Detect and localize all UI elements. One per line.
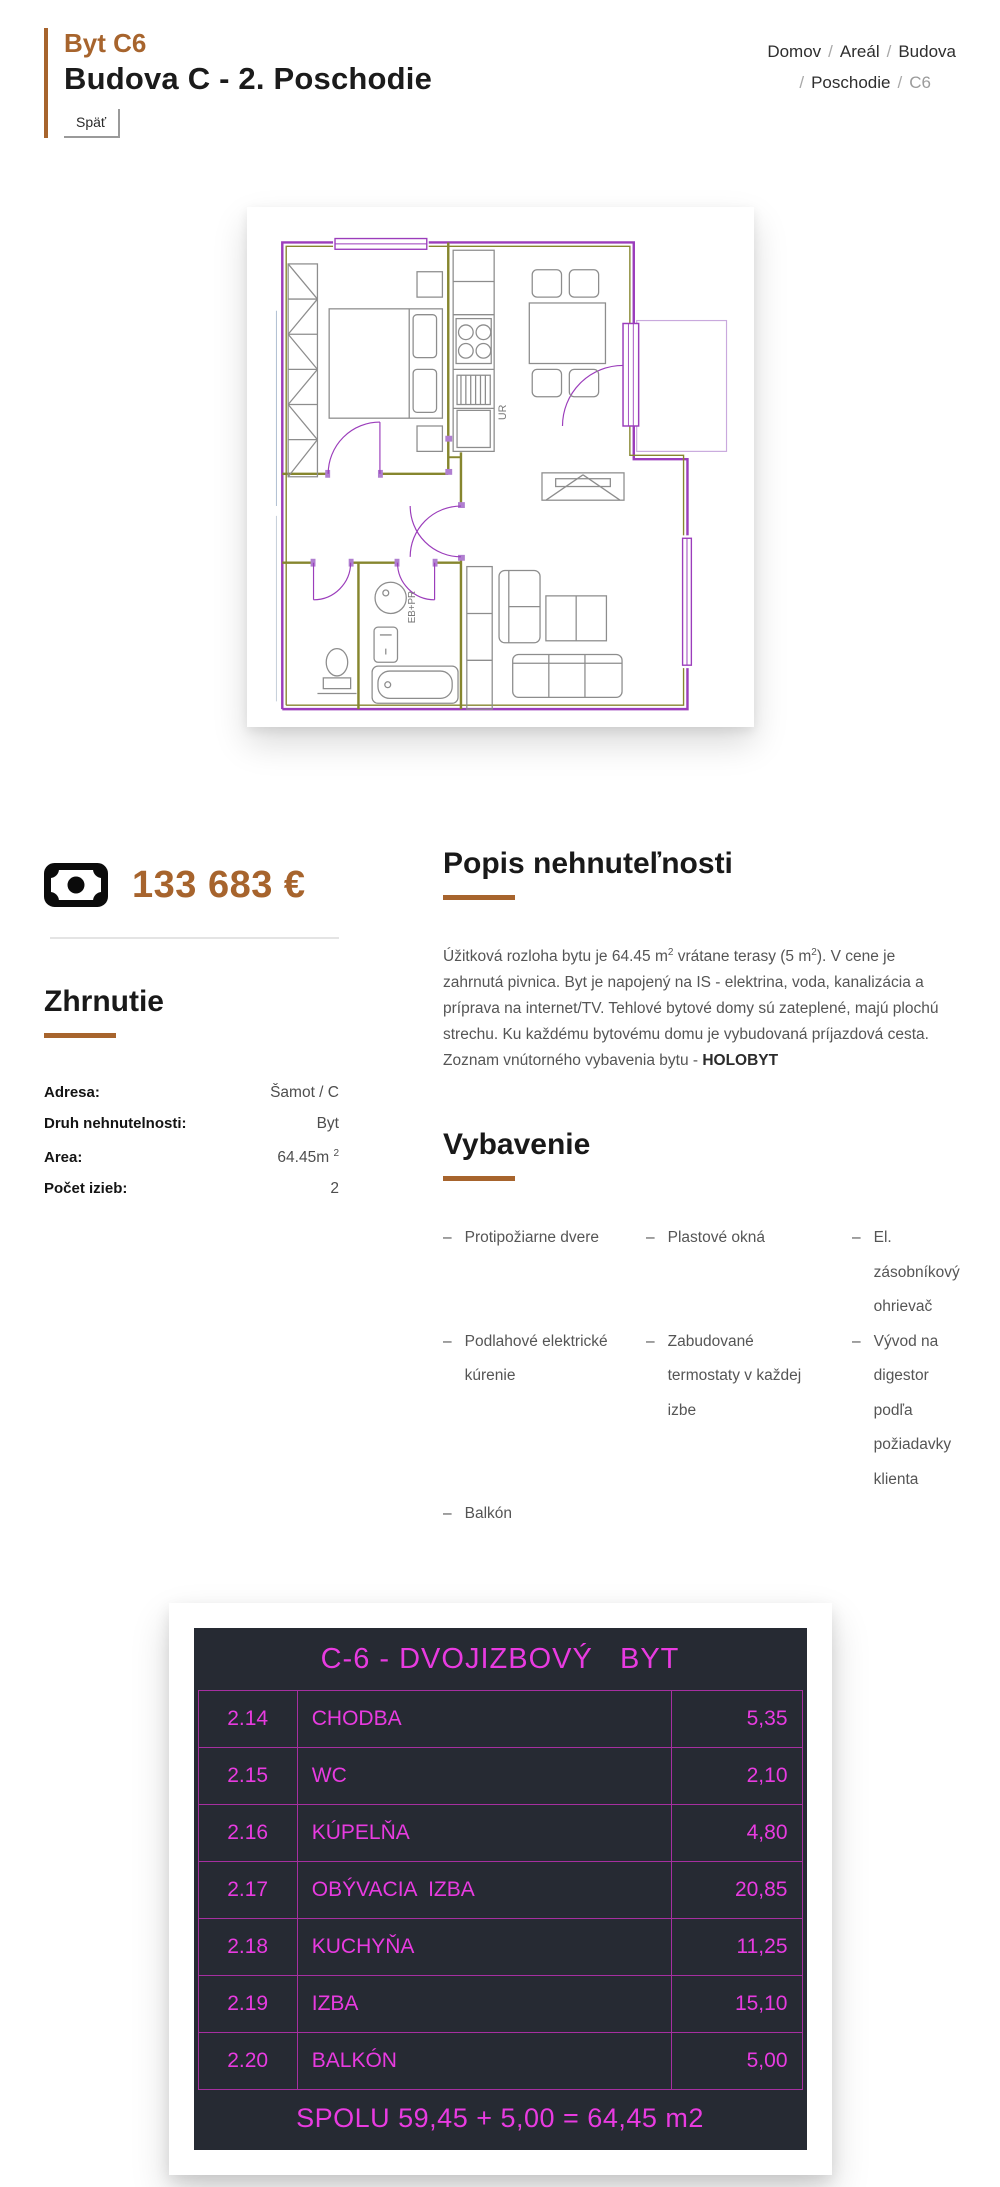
- room-table-row: 2.17OBÝVACIA IZBA20,85: [198, 1861, 802, 1918]
- summary-label: Area:: [44, 1143, 82, 1174]
- summary-row: Area:64.45m 2: [44, 1139, 339, 1174]
- breadcrumb-line-2: /Poschodie/C6: [767, 67, 956, 98]
- equipment-item-label: Vývod na digestor podľa požiadavky klien…: [874, 1325, 960, 1498]
- description-heading: Popis nehnuteľnosti: [443, 847, 960, 881]
- furniture: [288, 250, 624, 709]
- equipment-item: –Plastové okná: [646, 1221, 826, 1256]
- equipment-heading: Vybavenie: [443, 1128, 960, 1162]
- room-name: IZBA: [297, 1975, 671, 2032]
- room-table-row: 2.19IZBA15,10: [198, 1975, 802, 2032]
- room-table: 2.14CHODBA5,352.15WC2,102.16KÚPELŇA4,802…: [198, 1690, 803, 2090]
- breadcrumb-link-areal[interactable]: Areál: [840, 42, 880, 61]
- room-area: 15,10: [671, 1975, 802, 2032]
- plan-label-washer: EB+PR: [407, 591, 418, 623]
- summary-value: 64.45m 2: [277, 1139, 339, 1174]
- room-name: BALKÓN: [297, 2032, 671, 2089]
- description-line-2: Zoznam vnútorného vybavenia bytu - HOLOB…: [443, 1048, 960, 1074]
- breadcrumb-separator: /: [880, 42, 899, 61]
- apartment-detail-page: Byt C6 Budova C - 2. Poschodie Späť Domo…: [0, 0, 1000, 2187]
- breadcrumb: Domov/Areál/Budova /Poschodie/C6: [767, 36, 956, 98]
- balcony-door: [623, 323, 639, 426]
- equipment-item-label: Plastové okná: [668, 1221, 765, 1256]
- breadcrumb-separator: /: [792, 73, 811, 92]
- room-table-row: 2.14CHODBA5,35: [198, 1690, 802, 1747]
- room-number: 2.17: [198, 1861, 297, 1918]
- header: Byt C6 Budova C - 2. Poschodie Späť Domo…: [44, 28, 956, 138]
- room-number: 2.14: [198, 1690, 297, 1747]
- summary-rows: Adresa:Šamot / CDruh nehnutelnosti:BytAr…: [44, 1078, 339, 1204]
- equipment-list: –Protipožiarne dvere–Plastové okná–El. z…: [443, 1221, 960, 1532]
- room-table-total: SPOLU 59,45 + 5,00 = 64,45 m2: [198, 2090, 803, 2146]
- room-name: OBÝVACIA IZBA: [297, 1861, 671, 1918]
- breadcrumb-separator: /: [821, 42, 840, 61]
- room-table-card: C-6 - DVOJIZBOVÝ BYT 2.14CHODBA5,352.15W…: [169, 1603, 832, 2175]
- summary-row: Počet izieb:2: [44, 1174, 339, 1205]
- holobyt-label: HOLOBYT: [702, 1052, 778, 1069]
- breadcrumb-link-domov[interactable]: Domov: [767, 42, 821, 61]
- breadcrumb-line-1: Domov/Areál/Budova: [767, 36, 956, 67]
- room-number: 2.18: [198, 1918, 297, 1975]
- dash-bullet: –: [443, 1325, 452, 1360]
- breadcrumb-link-poschodie[interactable]: Poschodie: [811, 73, 890, 92]
- summary-value: Byt: [317, 1109, 339, 1140]
- detail-section: 133 683 € Zhrnutie Adresa:Šamot / CDruh …: [44, 847, 956, 1532]
- room-area: 4,80: [671, 1804, 802, 1861]
- room-table-row: 2.15WC2,10: [198, 1747, 802, 1804]
- floor-plan-drawing: UR EB+PR: [253, 213, 748, 721]
- heading-underline: [44, 1033, 116, 1038]
- door-jambs: [310, 436, 464, 567]
- equipment-section: Vybavenie –Protipožiarne dvere–Plastové …: [443, 1128, 960, 1532]
- heading-underline: [443, 895, 515, 900]
- room-name: WC: [297, 1747, 671, 1804]
- room-number: 2.19: [198, 1975, 297, 2032]
- equipment-item: –Vývod na digestor podľa požiadavky klie…: [852, 1325, 960, 1498]
- room-table-row: 2.16KÚPELŇA4,80: [198, 1804, 802, 1861]
- room-area: 20,85: [671, 1861, 802, 1918]
- room-name: KÚPELŇA: [297, 1804, 671, 1861]
- description-paragraph: Úžitková rozloha bytu je 64.45 m2 vrátan…: [443, 940, 960, 1048]
- page-title: Budova C - 2. Poschodie: [64, 61, 432, 97]
- room-name: CHODBA: [297, 1690, 671, 1747]
- banknote-icon: [44, 863, 108, 907]
- equipment-item: –Protipožiarne dvere: [443, 1221, 620, 1256]
- plan-label-ur: UR: [496, 404, 508, 420]
- room-table-row: 2.20BALKÓN5,00: [198, 2032, 802, 2089]
- divider: [50, 937, 339, 939]
- room-number: 2.15: [198, 1747, 297, 1804]
- price-amount: 133 683 €: [132, 864, 306, 907]
- summary-label: Druh nehnutelnosti:: [44, 1109, 187, 1140]
- summary-label: Počet izieb:: [44, 1174, 127, 1205]
- room-number: 2.20: [198, 2032, 297, 2089]
- equipment-item: –Balkón: [443, 1497, 620, 1532]
- room-table-body: 2.14CHODBA5,352.15WC2,102.16KÚPELŇA4,802…: [198, 1690, 802, 2089]
- equipment-item-label: Balkón: [465, 1497, 512, 1532]
- room-number: 2.16: [198, 1804, 297, 1861]
- back-button[interactable]: Späť: [64, 109, 120, 138]
- summary-row: Druh nehnutelnosti:Byt: [44, 1109, 339, 1140]
- description-text: Úžitková rozloha bytu je 64.45 m2 vrátan…: [443, 940, 960, 1074]
- equipment-item: –El. zásobníkový ohrievač: [852, 1221, 960, 1325]
- dash-bullet: –: [646, 1221, 655, 1256]
- equipment-item-label: Protipožiarne dvere: [465, 1221, 599, 1256]
- dash-bullet: –: [443, 1497, 452, 1532]
- room-area: 11,25: [671, 1918, 802, 1975]
- breadcrumb-link-budova[interactable]: Budova: [898, 42, 956, 61]
- description-section: Popis nehnuteľnosti Úžitková rozloha byt…: [443, 847, 960, 1074]
- room-area: 5,35: [671, 1690, 802, 1747]
- dash-bullet: –: [852, 1325, 861, 1360]
- summary-heading: Zhrnutie: [44, 985, 339, 1019]
- breadcrumb-separator: /: [890, 73, 909, 92]
- summary-value: Šamot / C: [270, 1078, 339, 1109]
- right-column: Popis nehnuteľnosti Úžitková rozloha byt…: [443, 847, 960, 1532]
- room-area: 2,10: [671, 1747, 802, 1804]
- equipment-item-label: El. zásobníkový ohrievač: [874, 1221, 960, 1325]
- door-swing-arcs: [313, 422, 460, 600]
- dash-bullet: –: [646, 1325, 655, 1360]
- cad-table: C-6 - DVOJIZBOVÝ BYT 2.14CHODBA5,352.15W…: [194, 1628, 807, 2150]
- breadcrumb-current: C6: [909, 73, 931, 92]
- equipment-item-label: Podlahové elektrické kúrenie: [465, 1325, 620, 1394]
- summary-section: Zhrnutie Adresa:Šamot / CDruh nehnutelno…: [44, 985, 339, 1204]
- room-table-title: C-6 - DVOJIZBOVÝ BYT: [198, 1628, 803, 1690]
- summary-label: Adresa:: [44, 1078, 100, 1109]
- balcony-outline: [636, 321, 726, 452]
- price-row: 133 683 €: [44, 863, 339, 907]
- dash-bullet: –: [443, 1221, 452, 1256]
- dash-bullet: –: [852, 1221, 861, 1256]
- equipment-item: –Zabudované termostaty v každej izbe: [646, 1325, 826, 1429]
- room-table-row: 2.18KUCHYŇA11,25: [198, 1918, 802, 1975]
- room-name: KUCHYŇA: [297, 1918, 671, 1975]
- heading-underline: [443, 1176, 515, 1181]
- floor-plan-card: UR EB+PR: [247, 207, 754, 727]
- summary-row: Adresa:Šamot / C: [44, 1078, 339, 1109]
- equipment-item-label: Zabudované termostaty v každej izbe: [668, 1325, 826, 1429]
- equipment-item: –Podlahové elektrické kúrenie: [443, 1325, 620, 1394]
- room-area: 5,00: [671, 2032, 802, 2089]
- header-title-block: Byt C6 Budova C - 2. Poschodie Späť: [44, 28, 432, 138]
- apartment-code: Byt C6: [64, 28, 432, 58]
- summary-value: 2: [330, 1174, 339, 1205]
- left-column: 133 683 € Zhrnutie Adresa:Šamot / CDruh …: [44, 847, 339, 1532]
